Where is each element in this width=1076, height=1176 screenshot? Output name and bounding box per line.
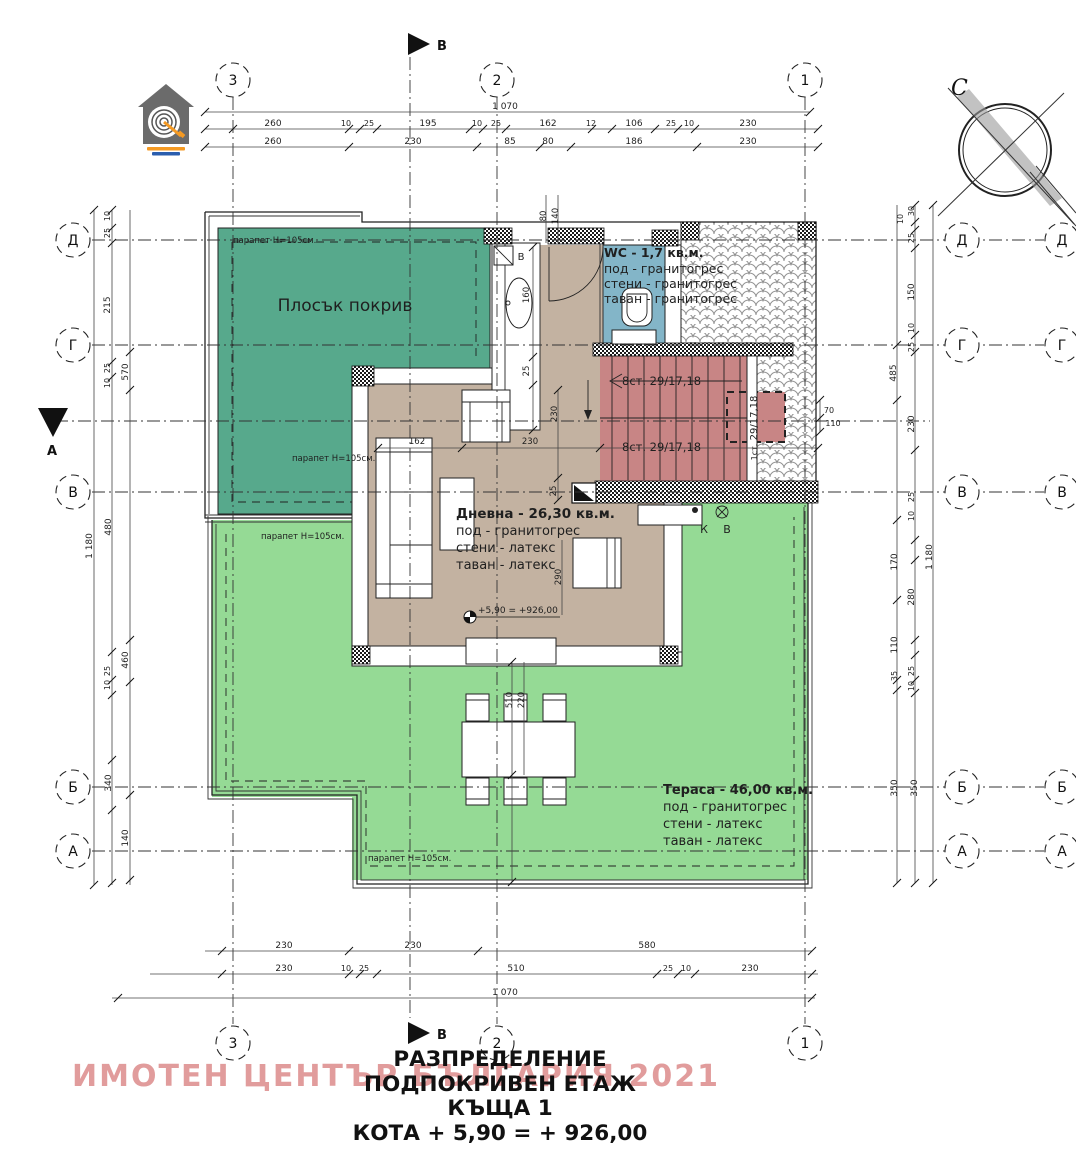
dim-label: 510 (505, 692, 515, 708)
section-marker-left: А (38, 408, 68, 459)
dim-label: 230 (550, 406, 560, 422)
dim-label: 12 (586, 119, 596, 128)
dim-label: 10 (472, 119, 482, 128)
dim-label: 25 (359, 964, 369, 973)
floor-plan-page: 321321ДГВБАДГВБАДГВБА В В А С 1 0702 (0, 0, 1076, 1176)
axis-bubble-1: 1 (788, 63, 822, 97)
terrace-label-floor: под - гранитогрес (663, 800, 787, 815)
axis-bubble-3: 3 (216, 1026, 250, 1060)
dim-label: 25 (364, 119, 374, 128)
terrace-label-ceiling: таван - латекс (663, 834, 762, 849)
axis-bubble-В: В (945, 475, 979, 509)
boiler-label: В (518, 252, 525, 263)
dim-label: 85 (504, 137, 515, 147)
dim-label: 10 (907, 511, 916, 521)
axis-bubble-Г: Г (56, 328, 90, 362)
dim-label: 170 (890, 553, 900, 570)
dim-label: 215 (103, 296, 113, 313)
axis-bubble-label: А (68, 844, 78, 860)
level-mark-label: +5,90 = +926,00 (478, 606, 558, 616)
living-label-ceiling: таван - латекс (456, 558, 555, 573)
dim-label: 140 (121, 829, 131, 846)
axis-bubble-label: Д (1057, 233, 1068, 249)
dim-label: 10 (907, 681, 916, 691)
side-chair (573, 538, 621, 588)
dim-label: 30 (907, 206, 916, 216)
dim-label: 230 (741, 964, 758, 974)
axis-bubble-label: Г (1058, 338, 1067, 354)
dim-label: 10 (103, 680, 112, 690)
terrace-label-title: Тераса - 46,00 кв.м. (663, 783, 813, 798)
axis-bubble-label: Б (1057, 780, 1067, 796)
terrace-area-right (678, 503, 808, 665)
company-logo (138, 84, 194, 156)
dim-label: 25 (103, 363, 112, 373)
dim-label: 1ст. (750, 444, 759, 461)
axis-bubble-Д: Д (945, 223, 979, 257)
section-marker-bottom: В (408, 1022, 447, 1044)
tv-stand (466, 638, 556, 664)
chair (466, 778, 489, 805)
dim-label: 350 (890, 779, 900, 796)
dim-label: 10 (681, 964, 691, 973)
title-block: РАЗПРЕДЕЛЕНИЕ ПОДПОКРИВЕН ЕТАЖ КЪЩА 1 КО… (353, 1047, 648, 1146)
dim-label: 1 180 (925, 544, 935, 570)
dim-label: 140 (551, 208, 561, 224)
axis-bubble-Д: Д (1045, 223, 1076, 257)
dim-label: 29/17,18 (749, 396, 760, 441)
dim-label: 80 (542, 137, 554, 147)
dim-label: 10 (907, 323, 916, 333)
axis-bubble-Б: Б (945, 770, 979, 804)
dim-label: 460 (121, 651, 131, 668)
axis-bubble-В: В (56, 475, 90, 509)
axis-bubble-label: А (957, 844, 967, 860)
dim-label: 340 (104, 774, 114, 791)
dining-set (462, 694, 575, 805)
sofa (376, 438, 432, 598)
dim-label: 570 (121, 363, 131, 380)
dim-label: 25 (907, 233, 916, 243)
parapet-label: парапет Н=105см. (233, 236, 316, 246)
axis-bubble-label: В (68, 485, 78, 501)
axis-bubble-label: 1 (801, 1036, 810, 1052)
dim-label: 1 070 (492, 988, 518, 998)
dim-label: 110 (890, 636, 900, 653)
axis-bubble-А: А (56, 834, 90, 868)
axis-bubble-label: 2 (493, 73, 502, 89)
compass-icon: С (938, 76, 1076, 226)
dim-label: 230 (404, 941, 421, 951)
dim-label: 25 (522, 366, 532, 377)
section-marker-label: В (437, 39, 447, 54)
dim-label: 260 (264, 119, 281, 129)
axis-bubble-Б: Б (56, 770, 90, 804)
axis-bubble-Г: Г (945, 328, 979, 362)
axis-bubble-А: А (1045, 834, 1076, 868)
dim-label: 25 (491, 119, 501, 128)
axis-bubble-label: Б (957, 780, 967, 796)
axis-bubble-В: В (1045, 475, 1076, 509)
axis-bubble-label: А (1057, 844, 1067, 860)
axis-bubble-label: Б (68, 780, 78, 796)
dim-label: 25 (103, 666, 112, 676)
chair (543, 694, 566, 721)
axis-bubble-label: В (1057, 485, 1067, 501)
dim-label: 260 (264, 137, 281, 147)
living-label-walls: стени - латекс (456, 541, 555, 556)
dim-label: 25 (907, 492, 916, 502)
dim-label: 230 (739, 119, 756, 129)
dim-label: 162 (409, 437, 425, 447)
dim-label: 480 (104, 518, 114, 535)
dim-label: 35 (890, 671, 899, 681)
dim-label: 186 (625, 137, 642, 147)
dim-label: 10 (103, 211, 112, 221)
stairs-flight-label: 8ст. 29/17,18 (622, 374, 701, 388)
flat-roof-label: Плосък покрив (278, 296, 413, 316)
axis-bubble-label: Г (69, 338, 78, 354)
duct-label-v: В (723, 523, 731, 536)
axis-bubble-label: Г (958, 338, 967, 354)
dim-label: 195 (419, 119, 436, 129)
dim-label: 162 (539, 119, 556, 129)
section-marker-label: А (47, 444, 57, 459)
compass-north-label: С (951, 76, 968, 101)
column-marker (572, 483, 596, 503)
dim-label: 25 (666, 119, 676, 128)
dim-label: 220 (517, 692, 527, 708)
chair (466, 694, 489, 721)
dim-label: 230 (404, 137, 421, 147)
axis-bubble-label: 3 (229, 73, 238, 89)
axis-bubble-Б: Б (1045, 770, 1076, 804)
dim-label: 350 (910, 779, 920, 796)
axis-bubble-label: В (957, 485, 967, 501)
parapet-label: парапет Н=105см. (261, 532, 344, 542)
dim-label: 1 180 (85, 533, 95, 559)
title-line-3: КЪЩА 1 (447, 1096, 552, 1121)
parapet-label: парапет Н=105см. (292, 454, 375, 464)
dim-label: 110 (825, 419, 840, 428)
axis-bubble-label: Д (957, 233, 968, 249)
dim-label: 150 (907, 283, 917, 300)
terrace-label-walls: стени - латекс (663, 817, 762, 832)
floor-plan-drawing: 321321ДГВБАДГВБАДГВБА В В А С 1 0702 (0, 0, 1076, 1176)
dim-label: 80 (539, 211, 549, 222)
wc-label-walls: стени - гранитогрес (604, 276, 737, 291)
wc-label-title: WC - 1,7 кв.м. (604, 245, 703, 260)
dim-label: 70 (824, 406, 834, 415)
dim-label: 290 (554, 569, 564, 585)
axis-bubble-1: 1 (788, 1026, 822, 1060)
dim-label: 10 (103, 378, 112, 388)
dim-label: 25 (549, 486, 559, 497)
dim-label: 580 (638, 941, 655, 951)
living-label-floor: под - гранитогрес (456, 524, 580, 539)
title-line-1: РАЗПРЕДЕЛЕНИЕ (393, 1047, 606, 1072)
dim-label: 25 (103, 228, 112, 238)
axis-bubble-label: Д (68, 233, 79, 249)
axis-bubble-Г: Г (1045, 328, 1076, 362)
wc-label-ceiling: таван - гранитогрес (604, 291, 737, 306)
axis-bubble-2: 2 (480, 63, 514, 97)
dim-label: 230 (739, 137, 756, 147)
dim-label: 160 (522, 287, 532, 303)
dining-table (462, 722, 575, 777)
dim-label: 1 070 (492, 102, 518, 112)
axis-bubble-3: 3 (216, 63, 250, 97)
parapet-label: парапет Н=105см. (368, 854, 451, 864)
axis-bubble-label: 1 (801, 73, 810, 89)
dim-label: 230 (275, 964, 292, 974)
title-line-4: КОТА + 5,90 = + 926,00 (353, 1121, 648, 1146)
duct-label-k: К (700, 523, 708, 536)
living-label-title: Дневна - 26,30 кв.м. (456, 506, 615, 522)
axis-bubble-А: А (945, 834, 979, 868)
dim-label: 25 (907, 666, 916, 676)
dim-label: 10 (684, 119, 694, 128)
dim-label: 106 (625, 119, 642, 129)
dim-label: 10 (896, 214, 905, 224)
wc-label-floor: под - гранитогрес (604, 261, 724, 276)
chair (543, 778, 566, 805)
axis-bubble-Д: Д (56, 223, 90, 257)
dim-label: 25 (663, 964, 673, 973)
axis-bubble-label: 3 (229, 1036, 238, 1052)
section-marker-top: В (408, 33, 447, 55)
chair (504, 778, 527, 805)
dim-label: 230 (522, 437, 538, 447)
stairs-flight-label: 8ст. 29/17,18 (622, 440, 701, 454)
dim-label: 485 (889, 364, 899, 381)
title-line-2: ПОДПОКРИВЕН ЕТАЖ (364, 1072, 636, 1097)
dim-label: 230 (907, 415, 917, 432)
dim-label: 10 (341, 964, 351, 973)
dim-label: 280 (907, 588, 917, 605)
dim-label: 25 (907, 342, 916, 352)
dim-label: 10 (341, 119, 351, 128)
dim-label: 230 (275, 941, 292, 951)
section-marker-label: В (437, 1028, 447, 1043)
armchair (462, 390, 510, 442)
dim-label: 510 (507, 964, 524, 974)
